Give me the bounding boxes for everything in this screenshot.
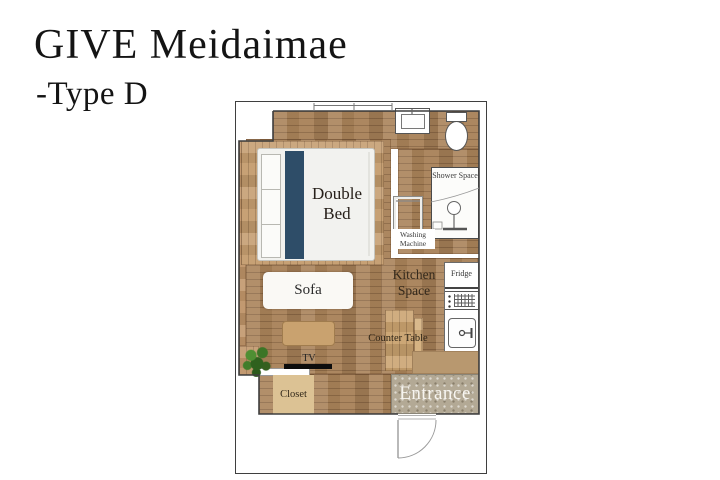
counter-table-label: Counter Table <box>364 333 432 345</box>
tv-label: TV <box>294 353 324 364</box>
double-bed-label: Double Bed <box>305 184 369 225</box>
kitchen-space-label: Kitchen Space <box>382 267 446 298</box>
plant-icon <box>242 345 272 377</box>
tv <box>284 364 332 369</box>
entrance: Entrance <box>391 374 479 414</box>
bed-blanket-stripe <box>285 151 304 259</box>
stove <box>445 291 478 310</box>
door-arc <box>398 420 436 458</box>
low-table <box>282 321 335 346</box>
shower-space-label: Shower Space <box>431 171 479 180</box>
washbasin <box>395 108 430 134</box>
washing-machine-label: Washing Machine <box>391 229 435 249</box>
closet: Closet <box>273 375 314 414</box>
page-title: GIVE Meidaimae <box>34 24 348 66</box>
stove-burners-icon <box>454 294 475 307</box>
kitchen-counter-column: Fridge <box>444 262 479 352</box>
page: GIVE Meidaimae -Type D Double Bed Shower… <box>0 0 720 480</box>
fridge: Fridge <box>445 263 478 289</box>
entrance-label: Entrance <box>399 383 471 405</box>
page-subtitle: -Type D <box>36 78 148 111</box>
entrance-door <box>398 416 436 459</box>
sofa-label: Sofa <box>294 282 322 299</box>
window-symbol <box>314 103 392 111</box>
bed-pillows <box>261 154 281 258</box>
toilet-bowl <box>445 121 468 151</box>
kitchen-sink <box>448 318 476 348</box>
stove-knobs-icon <box>447 294 452 308</box>
floorplan: Double Bed Shower Space Washing Machine … <box>235 101 487 474</box>
sofa: Sofa <box>263 272 353 309</box>
kitchen-step <box>412 351 479 374</box>
washbasin-bowl <box>401 114 425 129</box>
washing-machine <box>394 197 422 232</box>
